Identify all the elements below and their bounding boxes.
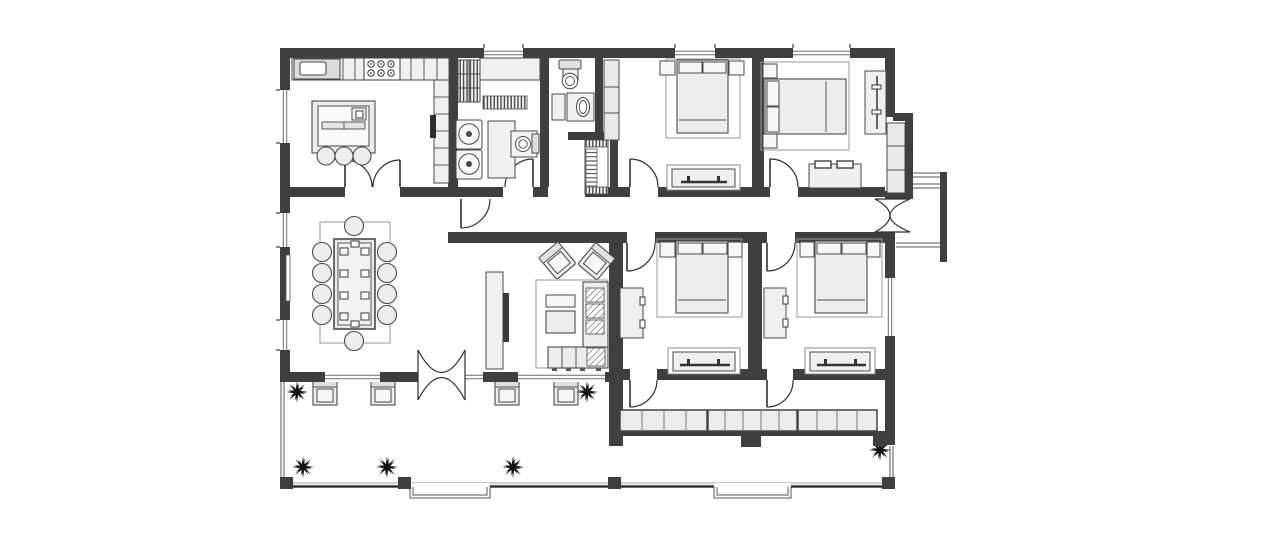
dining-room — [282, 217, 397, 351]
bedroom-4 — [764, 239, 882, 374]
nightstand — [800, 242, 814, 257]
bar-stools — [317, 147, 371, 165]
nightstand — [763, 134, 777, 148]
sink-basin — [300, 62, 326, 75]
bedroom3-door — [627, 243, 655, 271]
slatted-shelving — [458, 60, 480, 102]
wardrobe — [887, 123, 905, 193]
kitchen-double-door — [345, 160, 400, 187]
kitchen-island — [312, 101, 375, 153]
plant-icon — [576, 381, 598, 403]
nightstand — [660, 242, 675, 257]
corridor-door — [461, 199, 490, 228]
coffee-table — [546, 311, 575, 333]
tv-bench — [667, 165, 740, 190]
utility-room — [456, 58, 540, 179]
coffee-table — [546, 295, 575, 307]
floor-plan-canvas: House floor plan — single-story residenc… — [0, 0, 1276, 549]
desk — [865, 71, 886, 134]
dresser — [809, 161, 861, 188]
nightstand — [727, 242, 742, 257]
porch-armchairs — [313, 381, 578, 405]
window — [674, 44, 716, 58]
utility-toilet-icon — [511, 131, 539, 157]
bedroom-2 — [761, 62, 905, 193]
hall-nook — [585, 140, 608, 194]
plant-icon — [502, 456, 524, 478]
double-bed — [677, 60, 728, 133]
wardrobe — [604, 60, 619, 140]
armchair — [539, 242, 576, 280]
washing-machines — [456, 120, 482, 179]
porch-armchair — [554, 381, 578, 405]
tv-console — [486, 272, 503, 369]
nightstand — [660, 61, 675, 75]
nightstand — [866, 242, 880, 257]
wall-cabinet — [764, 288, 788, 338]
floor-plan-page: House floor plan — single-story residenc… — [0, 0, 1276, 549]
porch-armchair — [313, 381, 337, 405]
bath-cabinet — [552, 94, 565, 120]
kitchen-radiator-icon — [430, 115, 436, 138]
plant-icon — [292, 456, 314, 478]
window — [792, 44, 851, 58]
utility-counter — [480, 58, 540, 80]
bedroom4-rear-door — [767, 380, 793, 407]
window — [276, 319, 290, 351]
plant-icon — [376, 456, 398, 478]
bedroom1-door — [630, 159, 658, 187]
bedroom4-door — [767, 243, 795, 271]
porch-armchair — [495, 381, 519, 405]
porch-armchair — [371, 381, 395, 405]
double-bed — [676, 241, 728, 313]
nightstand — [763, 64, 777, 78]
porch-double-swing-door — [418, 350, 465, 400]
window — [276, 212, 290, 248]
doormat-icon — [483, 96, 527, 109]
wall-cabinet — [620, 288, 645, 338]
porch — [280, 381, 895, 498]
stoop-edge — [940, 172, 947, 262]
toilet-icon — [559, 60, 581, 89]
double-bed — [815, 241, 867, 313]
window — [276, 89, 290, 144]
vanity-sink-icon — [567, 93, 594, 121]
dining-table — [334, 239, 375, 329]
window — [518, 372, 605, 382]
double-bed — [765, 79, 846, 134]
linen-cabinet — [585, 140, 608, 194]
tv-bench — [668, 348, 740, 374]
nightstand — [729, 61, 744, 75]
plant-icon — [286, 381, 308, 403]
entrance-double-swing-door — [875, 199, 910, 232]
stove-icon — [364, 58, 400, 80]
tv-bench — [805, 348, 875, 374]
bathroom — [552, 60, 594, 121]
window-band — [620, 410, 877, 431]
window — [325, 372, 380, 382]
kitchen — [292, 58, 449, 183]
bedroom3-rear-door — [630, 380, 657, 407]
bedroom-3 — [620, 239, 742, 374]
window — [465, 372, 483, 382]
tv-icon — [503, 293, 509, 342]
window — [483, 44, 524, 58]
kitchen-side-counter — [434, 80, 449, 183]
porch-steps — [410, 483, 791, 498]
bedroom-1 — [604, 59, 744, 190]
window — [885, 278, 895, 336]
bedroom2-door — [770, 159, 798, 187]
living-room — [486, 242, 615, 371]
